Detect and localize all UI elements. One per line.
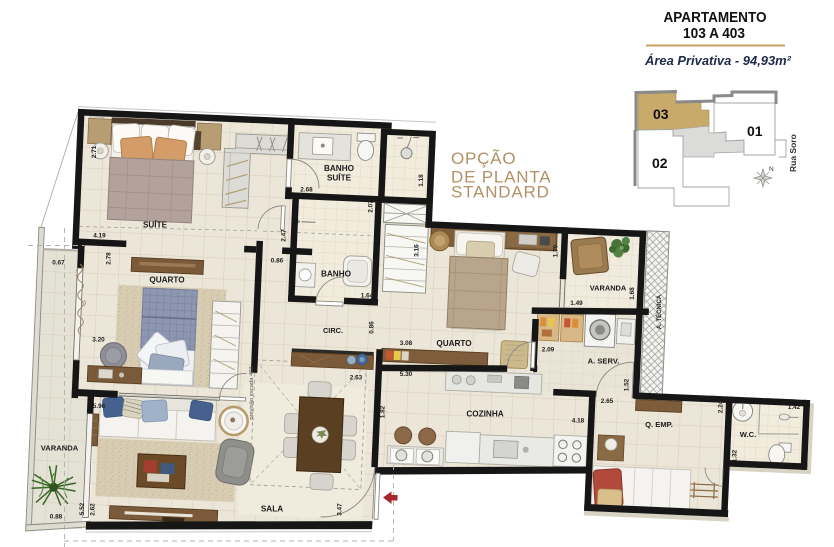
svg-text:5.30: 5.30 [400, 371, 413, 378]
svg-text:1.82: 1.82 [380, 405, 387, 418]
svg-text:0.86: 0.86 [271, 258, 284, 265]
svg-text:2.09: 2.09 [542, 347, 555, 354]
svg-text:BANHO: BANHO [321, 270, 352, 279]
svg-text:1.18: 1.18 [418, 174, 425, 187]
svg-text:2.71: 2.71 [91, 145, 98, 158]
svg-text:VARANDA: VARANDA [41, 444, 79, 453]
svg-text:3.16: 3.16 [414, 244, 421, 257]
svg-text:previsão escada 403: previsão escada 403 [249, 366, 255, 420]
svg-text:0.86: 0.86 [369, 321, 376, 334]
svg-text:5.96: 5.96 [93, 403, 106, 410]
svg-text:3.08: 3.08 [400, 340, 413, 347]
svg-text:SUÍTE: SUÍTE [327, 173, 352, 183]
svg-text:2.65: 2.65 [601, 398, 614, 405]
svg-text:SUÍTE: SUÍTE [143, 220, 168, 230]
svg-text:CIRC.: CIRC. [323, 326, 343, 335]
svg-text:A. TÉCNICA: A. TÉCNICA [655, 294, 663, 329]
svg-text:QUARTO: QUARTO [149, 276, 185, 285]
svg-text:1.64: 1.64 [361, 293, 374, 300]
svg-text:Rua Soro: Rua Soro [788, 134, 798, 172]
svg-text:2.62: 2.62 [90, 503, 97, 516]
svg-text:1.42: 1.42 [788, 404, 801, 411]
svg-text:APARTAMENTO: APARTAMENTO [664, 9, 767, 26]
svg-text:2.78: 2.78 [106, 252, 113, 265]
svg-text:2.47: 2.47 [281, 229, 288, 242]
svg-text:1.68: 1.68 [629, 287, 636, 300]
svg-text:QUARTO: QUARTO [436, 339, 472, 348]
svg-text:Q. EMP.: Q. EMP. [645, 420, 673, 429]
svg-text:Área Privativa - 94,93m²: Área Privativa - 94,93m² [644, 53, 792, 68]
svg-text:OPÇÃO: OPÇÃO [451, 149, 516, 168]
svg-text:0.67: 0.67 [52, 260, 65, 267]
svg-text:1.70: 1.70 [553, 244, 560, 257]
svg-text:2.07: 2.07 [368, 200, 375, 213]
svg-text:N: N [769, 166, 774, 173]
svg-text:1.49: 1.49 [570, 300, 583, 307]
svg-text:103 A 403: 103 A 403 [683, 25, 745, 42]
svg-text:03: 03 [653, 106, 669, 122]
svg-text:4.18: 4.18 [572, 418, 585, 425]
svg-text:COZINHA: COZINHA [466, 410, 503, 419]
svg-text:0.88: 0.88 [50, 514, 63, 521]
svg-text:1.52: 1.52 [624, 378, 631, 391]
svg-text:2.24: 2.24 [718, 400, 725, 413]
svg-text:2.63: 2.63 [350, 375, 363, 382]
svg-text:02: 02 [652, 155, 668, 171]
svg-text:W.C.: W.C. [740, 430, 756, 439]
svg-text:4.19: 4.19 [93, 233, 106, 240]
svg-text:1.32: 1.32 [732, 449, 739, 462]
svg-text:2.68: 2.68 [300, 187, 313, 194]
svg-text:VARANDA: VARANDA [590, 284, 627, 293]
svg-text:5.52: 5.52 [79, 502, 86, 515]
svg-text:SALA: SALA [261, 505, 283, 514]
svg-text:3.20: 3.20 [92, 337, 105, 344]
svg-text:BANHO: BANHO [324, 164, 355, 173]
svg-text:STANDARD: STANDARD [451, 183, 550, 202]
svg-text:01: 01 [747, 123, 763, 139]
svg-text:3.47: 3.47 [337, 503, 344, 516]
svg-text:A. SERV.: A. SERV. [588, 357, 620, 366]
